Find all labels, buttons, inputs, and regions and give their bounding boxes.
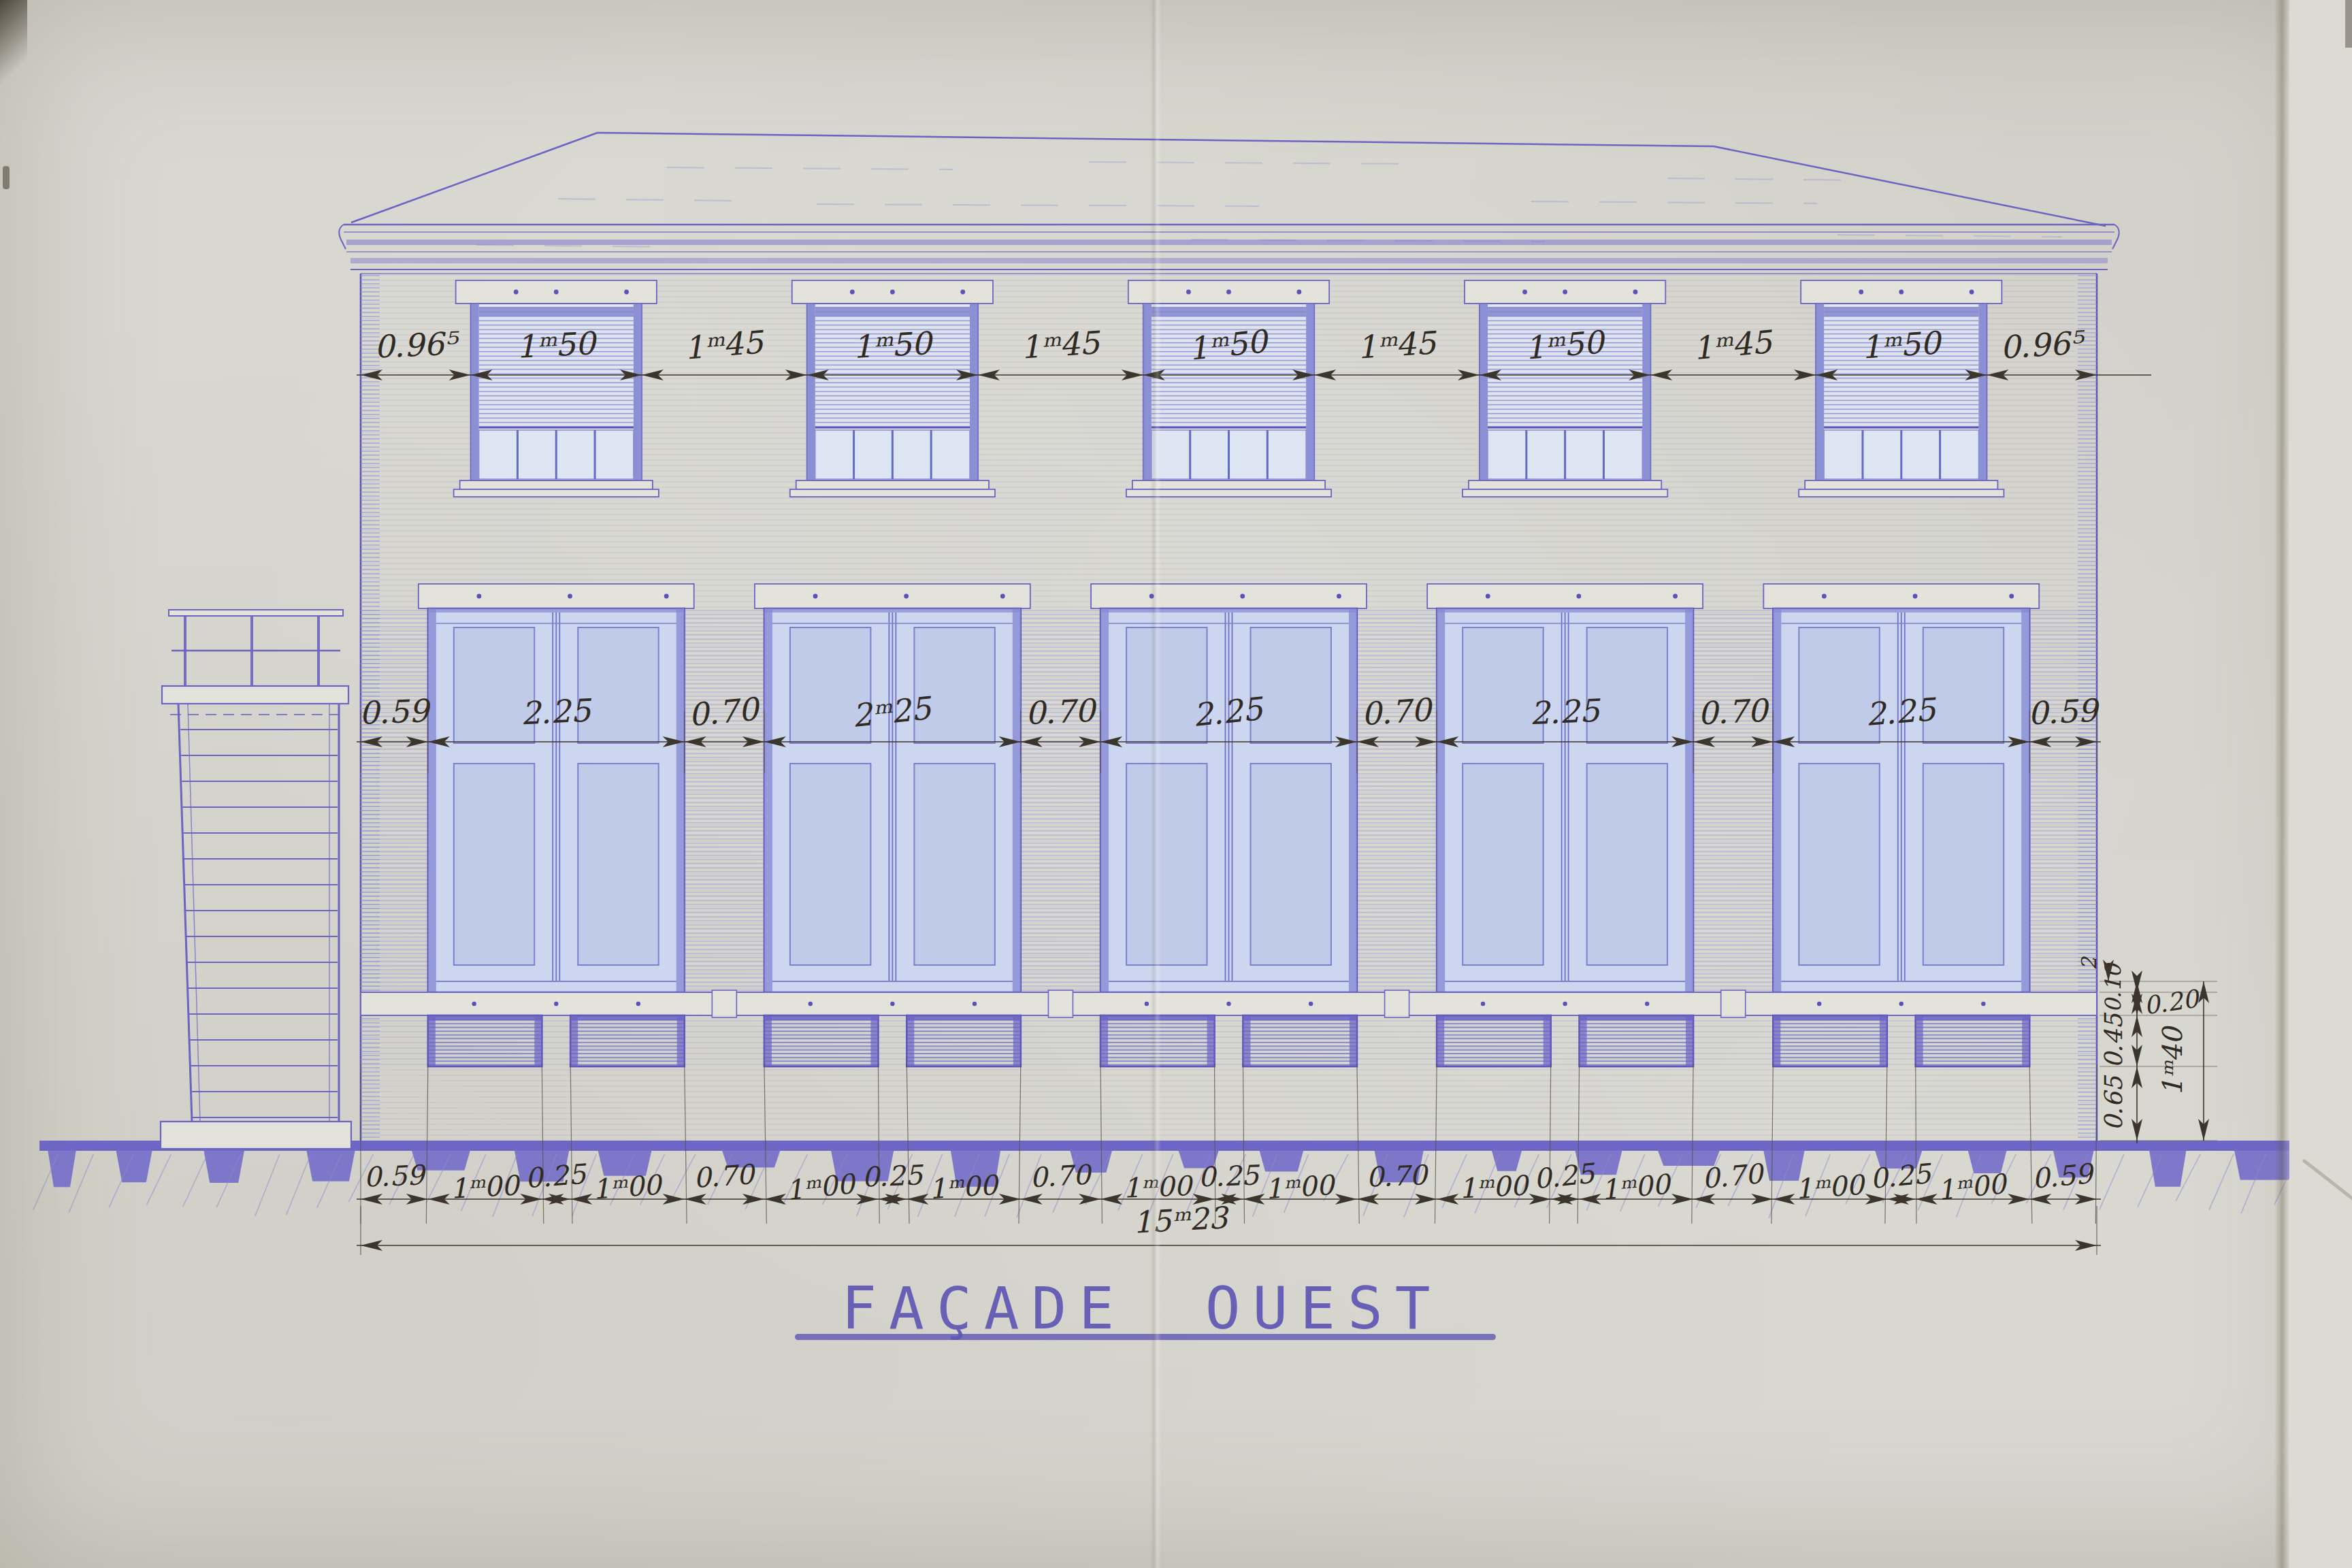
dimension-label: 2.25 bbox=[1864, 691, 1938, 733]
dimension-label: 1ᵐ40 bbox=[2157, 1025, 2188, 1096]
dimension-label: 0.59 bbox=[363, 1159, 427, 1193]
dimension-label: 0.25 bbox=[1198, 1159, 1261, 1192]
dimension-label: 0.70 bbox=[1029, 1158, 1094, 1193]
dimension-label: 1ᵐ45 bbox=[1691, 323, 1775, 367]
dimension-label: 0.20 bbox=[2142, 984, 2202, 1019]
french-door bbox=[1091, 584, 1367, 992]
dimension-label: 1ᵐ00 bbox=[1264, 1169, 1337, 1205]
dimension-label: 1ᵐ00 bbox=[449, 1169, 522, 1205]
dimension-label: 0.59 bbox=[359, 692, 432, 732]
dimension-label: 0.70 bbox=[1701, 1158, 1766, 1194]
dimension-label: 0.70 bbox=[692, 1158, 757, 1194]
drawing-title: FAÇADE OUEST bbox=[802, 1274, 1482, 1342]
fold-crease-center bbox=[1150, 0, 1161, 1568]
dim-total-width: 15ᵐ23 bbox=[357, 1200, 2101, 1255]
dimension-label: 1ᵐ50 bbox=[1860, 324, 1944, 365]
dimension-label: 0.59 bbox=[2027, 691, 2101, 732]
dimension-label: 1ᵐ45 bbox=[1356, 324, 1439, 366]
dimension-label: 1ᵐ00 bbox=[1600, 1168, 1673, 1205]
dimension-label: 0.45 bbox=[2100, 1012, 2127, 1068]
dimension-label: 0.70 bbox=[1024, 692, 1098, 732]
dimension-label: 2.25 bbox=[1529, 692, 1602, 732]
dimension-label: 1ᵐ45 bbox=[683, 323, 766, 367]
dimension-label: 0.25 bbox=[861, 1159, 924, 1193]
dimension-label: 2.25 bbox=[1191, 690, 1266, 734]
sheet-edge-right bbox=[2274, 0, 2289, 1568]
dimension-label: 1ᵐ00 bbox=[591, 1169, 665, 1205]
dimension-label: 1ᵐ00 bbox=[1458, 1169, 1531, 1204]
dimension-label: 1ᵐ00 bbox=[1935, 1168, 2010, 1206]
french-door bbox=[1763, 584, 2039, 992]
photo-corner-shadow-tl bbox=[0, 0, 27, 95]
upper-window bbox=[454, 280, 659, 497]
dimension-label: 0.96⁵ bbox=[1999, 324, 2087, 366]
dimension-label: 0.25 bbox=[1869, 1158, 1934, 1194]
dimension-label: 0.70 bbox=[1366, 1159, 1430, 1193]
dimension-label: 0.70 bbox=[1360, 691, 1435, 732]
dimension-label: 0.70 bbox=[687, 690, 762, 733]
cornice bbox=[339, 225, 2119, 269]
dimension-label: 0.59 bbox=[2031, 1158, 2096, 1194]
dimension-label: 1ᵐ50 bbox=[851, 325, 934, 365]
upper-window bbox=[1799, 280, 2004, 497]
upper-window bbox=[790, 280, 995, 497]
french-door bbox=[1427, 584, 1703, 992]
dimension-label: 0.96⁵ bbox=[374, 325, 461, 365]
dimension-label: 2.25 bbox=[520, 691, 593, 732]
upper-window bbox=[1463, 280, 1667, 497]
dimension-label: 0.25 bbox=[1533, 1158, 1598, 1195]
paper-speck bbox=[3, 166, 10, 189]
dim-right-vertical: 0.100.200.450.6521ᵐ40 bbox=[2077, 956, 2217, 1143]
blueprint-sheet: 0.96⁵1ᵐ501ᵐ451ᵐ501ᵐ451ᵐ501ᵐ451ᵐ501ᵐ451ᵐ5… bbox=[0, 0, 2352, 1568]
roof bbox=[351, 133, 2106, 247]
dimension-label: 2 bbox=[2077, 956, 2101, 970]
photo-corner-shadow-tr bbox=[2345, 0, 2352, 48]
dimension-label: 1ᵐ00 bbox=[928, 1169, 1000, 1205]
french-door bbox=[419, 584, 694, 992]
dimension-label: 0.25 bbox=[524, 1158, 589, 1194]
dimension-label: 15ᵐ23 bbox=[1132, 1200, 1230, 1239]
adjacent-sheet bbox=[2289, 0, 2352, 1568]
french-door bbox=[755, 584, 1030, 992]
dimension-label: 1ᵐ50 bbox=[1523, 323, 1607, 367]
dimension-label: 0.65 bbox=[2100, 1075, 2127, 1130]
base-band bbox=[361, 990, 2097, 1017]
dimension-label: 1ᵐ45 bbox=[1019, 324, 1102, 366]
dimension-label: 0.10 bbox=[2100, 962, 2126, 1013]
vent-panels bbox=[361, 1015, 2097, 1066]
dimension-label: 1ᵐ00 bbox=[785, 1168, 859, 1207]
title-underline bbox=[795, 1334, 1496, 1340]
dimension-label: 1ᵐ50 bbox=[515, 325, 598, 365]
dimension-label: 1ᵐ00 bbox=[1794, 1169, 1867, 1205]
staircase bbox=[161, 610, 351, 1149]
dimension-label: 0.70 bbox=[1697, 691, 1771, 732]
